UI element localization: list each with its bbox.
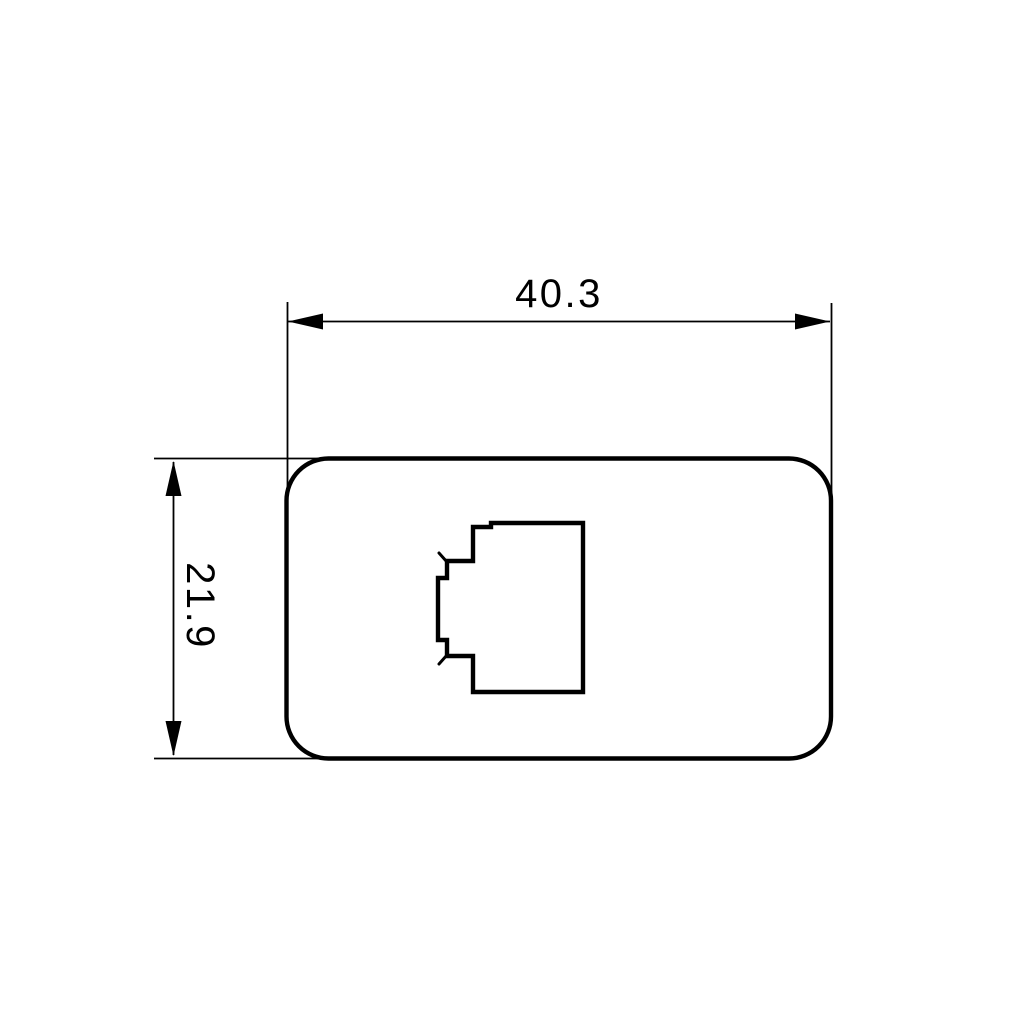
- height-dimension: 21.9: [154, 459, 322, 759]
- width-dimension-label: 40.3: [515, 272, 603, 316]
- jack-latch-tick-bottom: [439, 655, 447, 664]
- faceplate-outline: [287, 459, 832, 759]
- cad-drawing-canvas: 40.3 21.9: [0, 0, 1024, 1024]
- drawing-page: 40.3 21.9: [0, 0, 1024, 1024]
- faceplate: [287, 459, 832, 759]
- arrowhead-up-icon: [166, 461, 182, 496]
- arrowhead-right-icon: [795, 314, 830, 330]
- jack-latch-tick-top: [439, 553, 447, 562]
- width-dimension: 40.3: [288, 272, 832, 505]
- arrowhead-left-icon: [288, 314, 323, 330]
- arrowhead-down-icon: [166, 721, 182, 756]
- height-dimension-label: 21.9: [178, 562, 222, 650]
- jack-cutout-outline: [438, 523, 583, 692]
